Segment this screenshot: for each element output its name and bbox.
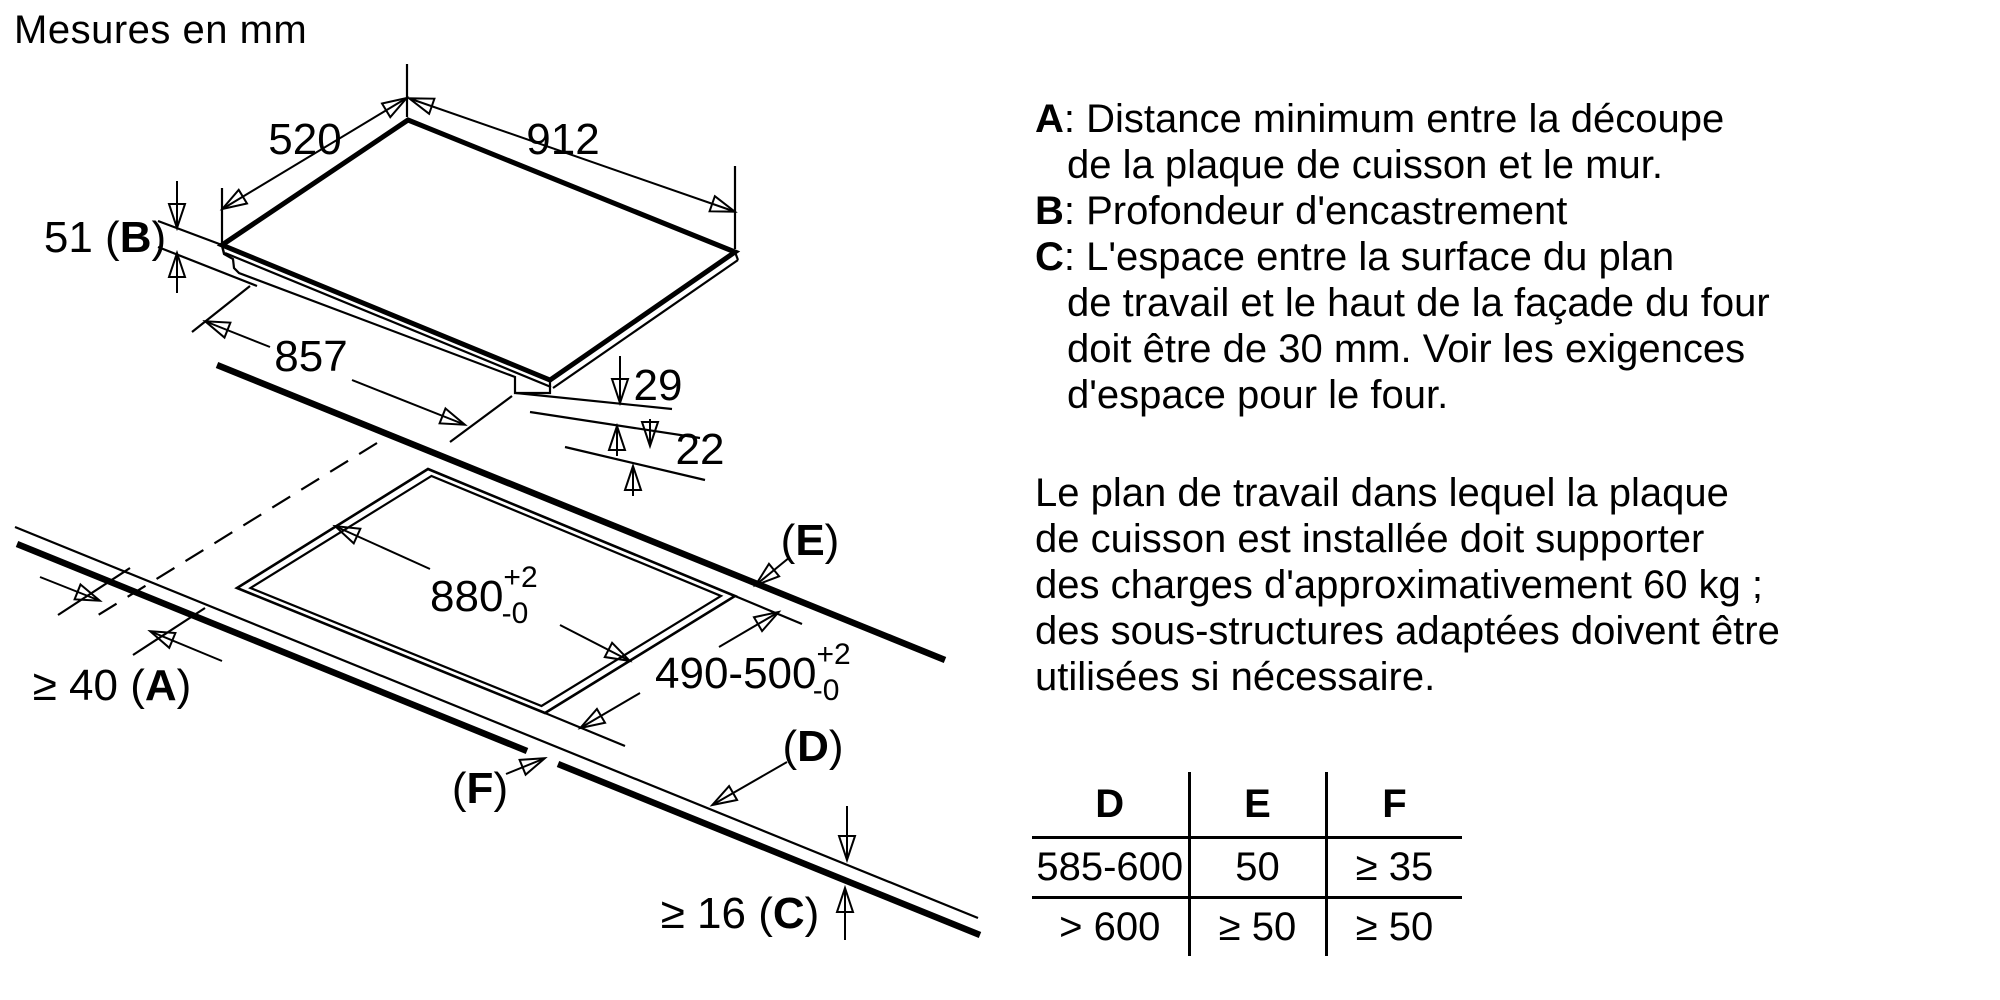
- def-table: D E F 585-600 50 ≥ 35 > 600 ≥ 50 ≥ 50: [1032, 772, 1462, 956]
- table-cell-d2: > 600: [1032, 898, 1189, 957]
- dim-857-line-b: [352, 380, 463, 424]
- dim-40a-arrow-left: [152, 632, 222, 661]
- label-e: (E): [781, 516, 840, 565]
- paragraph-line-1: Le plan de travail dans lequel la plaque: [1035, 470, 1780, 516]
- dim-29-label: 29: [634, 361, 683, 410]
- dim-22-label: 22: [676, 425, 725, 474]
- table-cell-f1: ≥ 35: [1326, 838, 1462, 898]
- worktop-load-paragraph: Le plan de travail dans lequel la plaque…: [1035, 470, 1780, 700]
- dim-490-label: 490-500+2-0: [655, 638, 851, 707]
- table-row: 585-600 50 ≥ 35: [1032, 838, 1462, 898]
- worktop-rear-edge: [217, 365, 945, 660]
- table-cell-e2: ≥ 50: [1189, 898, 1326, 957]
- paragraph-line-4: des sous-structures adaptées doivent êtr…: [1035, 608, 1780, 654]
- paragraph-line-5: utilisées si nécessaire.: [1035, 654, 1780, 700]
- paragraph-line-3: des charges d'approximativement 60 kg ;: [1035, 562, 1780, 608]
- dim-880-label: 880+2-0: [430, 561, 538, 630]
- cutout-ext-bottom: [545, 713, 625, 746]
- note-c-line-1: C: L'espace entre la surface du plan: [1035, 234, 1770, 280]
- dim-490-line-b: [582, 693, 640, 727]
- leader-d: [714, 762, 787, 804]
- ext-857-right: [450, 396, 512, 442]
- paragraph-line-2: de cuisson est installée doit supporter: [1035, 516, 1780, 562]
- note-b-line-1: B: Profondeur d'encastrement: [1035, 188, 1770, 234]
- table-cell-f2: ≥ 50: [1326, 898, 1462, 957]
- table-header-d: D: [1032, 772, 1189, 838]
- dim-880-line-a: [337, 527, 430, 569]
- label-d: (D): [782, 722, 843, 771]
- note-c-line-2: de travail et le haut de la façade du fo…: [1035, 280, 1770, 326]
- ext-51b-upper: [158, 221, 230, 248]
- step-ext-line-2: [530, 412, 700, 438]
- dim-857-label: 857: [274, 332, 347, 381]
- dim-880-line-b: [560, 625, 628, 660]
- dim-490-line-a: [719, 613, 777, 647]
- legend-notes: A: Distance minimum entre la découpe de …: [1035, 96, 1770, 418]
- note-c-line-3: doit être de 30 mm. Voir les exigences: [1035, 326, 1770, 372]
- leader-f: [506, 759, 543, 774]
- table-row: > 600 ≥ 50 ≥ 50: [1032, 898, 1462, 957]
- dim-912-label: 912: [526, 115, 599, 164]
- dim-16c-label: ≥ 16 (C): [661, 889, 820, 938]
- ext-40a-right: [133, 608, 205, 655]
- note-a-line-1: A: Distance minimum entre la découpe: [1035, 96, 1770, 142]
- dim-857-line-a: [207, 322, 270, 347]
- dim-51b-label: 51 (B): [44, 213, 166, 262]
- note-c-line-4: d'espace pour le four.: [1035, 372, 1770, 418]
- table-header-row: D E F: [1032, 772, 1462, 838]
- ext-857-left: [192, 286, 250, 332]
- table-header-e: E: [1189, 772, 1326, 838]
- dim-40a-arrow-right: [40, 577, 98, 600]
- page: { "title": "Mesures en mm", "sep": ": ",…: [0, 0, 2000, 1000]
- table-cell-e1: 50: [1189, 838, 1326, 898]
- note-a-line-2: de la plaque de cuisson et le mur.: [1035, 142, 1770, 188]
- table-header-f: F: [1326, 772, 1462, 838]
- table-cell-d1: 585-600: [1032, 838, 1189, 898]
- dim-40a-label: ≥ 40 (A): [33, 661, 192, 710]
- label-f: (F): [452, 764, 508, 813]
- dim-520-label: 520: [268, 115, 341, 164]
